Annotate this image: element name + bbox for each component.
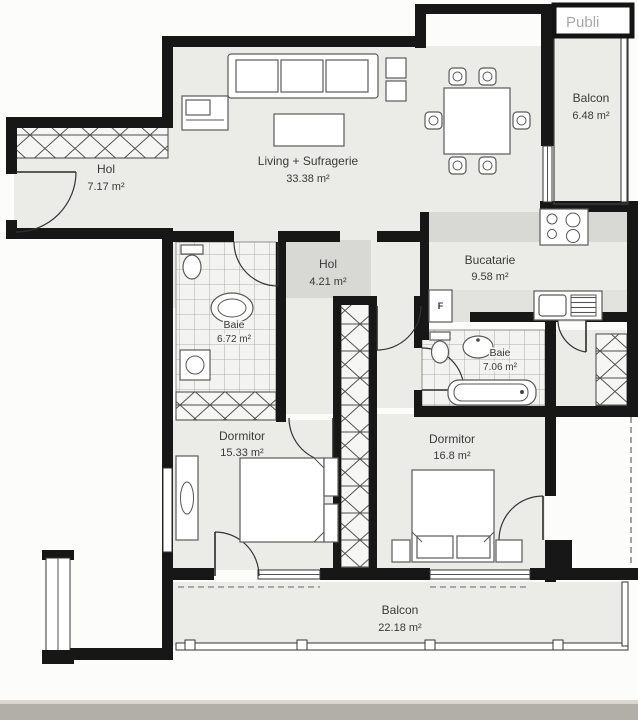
sink-basin (539, 295, 566, 316)
rail-post (553, 640, 563, 650)
wall (377, 231, 423, 242)
washing-machine-icon (180, 350, 210, 380)
bathtub-drain (520, 390, 524, 394)
room-name: Hol (97, 162, 115, 176)
floor-plan: Publi (0, 0, 638, 720)
fridge-box: F (429, 290, 452, 322)
bed-outline (240, 458, 324, 542)
room-area: 4.21 m² (309, 276, 347, 288)
nightstand (324, 458, 338, 496)
wall (162, 568, 214, 580)
coffee-table (274, 114, 344, 146)
window-dormitor-stanga (163, 468, 172, 552)
room-name: Balcon (382, 603, 419, 617)
wall (415, 4, 557, 14)
bathtub-icon (448, 380, 536, 405)
photo-edge-highlight (0, 700, 638, 704)
wall (162, 228, 173, 660)
dresser (176, 456, 198, 540)
bed (240, 458, 338, 542)
wall (320, 568, 430, 580)
floor-corridor-left (286, 306, 333, 414)
rail-post (425, 640, 435, 650)
wall (530, 568, 638, 580)
rail-post (297, 640, 307, 650)
toilet-bowl (183, 255, 201, 279)
wall (545, 322, 556, 412)
stove-outline (540, 209, 588, 245)
sink-tap (476, 338, 480, 342)
balcony-rail-right (621, 16, 627, 202)
room-name: Dormitor (429, 432, 475, 446)
dining-chair (449, 157, 466, 174)
nightstand (496, 540, 522, 562)
sofa-cushion (326, 60, 368, 92)
room-name: Baie (489, 347, 510, 359)
dining-chair (479, 68, 496, 85)
side-table (386, 58, 406, 78)
room-name: Bucatarie (465, 253, 516, 267)
stove-icon (540, 209, 588, 245)
dining-chair (425, 112, 442, 129)
room-area: 33.38 m² (286, 173, 330, 185)
room-area: 22.18 m² (378, 622, 422, 634)
toilet-tank (181, 245, 203, 254)
room-area: 6.72 m² (217, 334, 252, 345)
kitchen-sink (534, 291, 602, 320)
left-window-column (42, 550, 74, 664)
wall (172, 231, 234, 242)
room-name: Dormitor (219, 429, 265, 443)
dining-chair (513, 112, 530, 129)
room-name: Baie (223, 319, 244, 331)
dining-chair (479, 157, 496, 174)
bed (412, 470, 494, 562)
tv-cabinet (182, 96, 228, 130)
wall (545, 412, 556, 496)
sofa-cushion (236, 60, 278, 92)
room-area: 16.8 m² (433, 450, 471, 462)
wall (627, 330, 638, 416)
room-area: 7.17 m² (87, 181, 125, 193)
nightstand (324, 504, 338, 542)
wall (6, 117, 17, 174)
watermark-text: Publi (566, 14, 599, 31)
room-area: 15.33 m² (220, 447, 264, 459)
wall (369, 296, 377, 568)
fridge-label: F (438, 301, 444, 311)
toilet-bowl (432, 341, 449, 363)
toilet-tank (430, 332, 450, 340)
wall (42, 650, 74, 664)
wall (6, 117, 172, 128)
floor-corridor-right (377, 242, 414, 408)
toilet-icon (430, 332, 450, 363)
floor-balcon-sus (554, 14, 624, 204)
kitchen-counter-top (428, 212, 628, 242)
wall (278, 231, 340, 242)
rail-post (185, 640, 195, 650)
photo-edge-shadow (0, 704, 638, 720)
nightstand (392, 540, 410, 562)
washer-outline (180, 350, 210, 380)
closet-hatch-dormitor-stanga (176, 392, 276, 420)
room-name: Living + Sufragerie (258, 154, 359, 168)
sofa (228, 54, 378, 98)
room-area: 7.06 m² (483, 362, 518, 373)
room-name: Balcon (573, 91, 610, 105)
side-table (386, 81, 406, 101)
pillow (417, 536, 453, 558)
wall (162, 36, 426, 47)
room-area: 9.58 m² (471, 271, 509, 283)
shaft-hatch (341, 300, 369, 568)
photo-edge-strip (0, 700, 638, 720)
closet-hatch-dreapta (596, 334, 627, 406)
dresser-outline (176, 456, 198, 540)
sofa-cushion (281, 60, 323, 92)
room-name: Hol (319, 257, 337, 271)
dining-chair (449, 68, 466, 85)
wall (162, 36, 173, 128)
pillow (457, 536, 490, 558)
balcony-rail-right-bottom (622, 582, 628, 646)
wall (546, 540, 572, 570)
closet-hatch-hol-entry (16, 127, 168, 158)
wall (414, 406, 638, 417)
tv-screen (186, 100, 210, 115)
wall (414, 322, 422, 348)
room-area: 6.48 m² (572, 110, 610, 122)
dining-table (444, 88, 510, 154)
toilet-icon (181, 245, 203, 279)
sink-drainer (571, 295, 596, 316)
wall (60, 648, 164, 660)
